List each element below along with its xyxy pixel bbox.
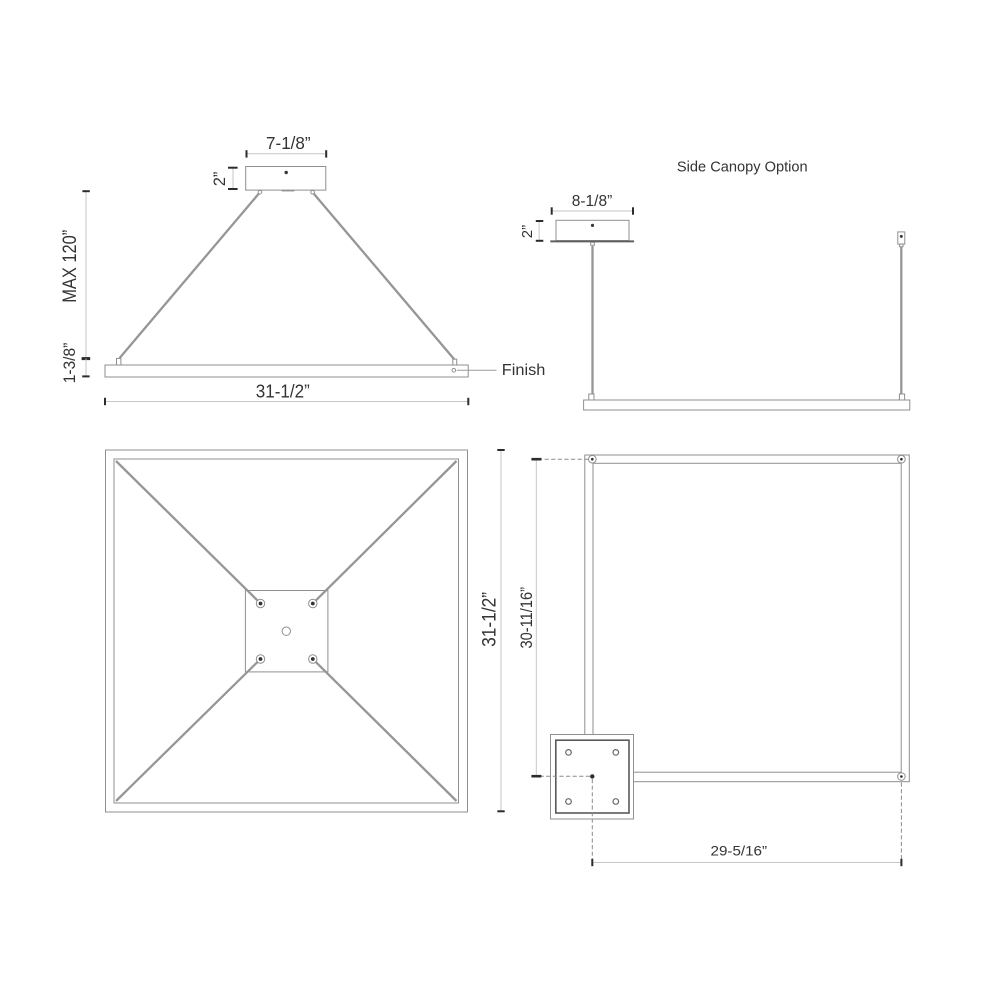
svg-text:7-1/8”: 7-1/8”	[266, 133, 311, 153]
svg-text:31-1/2”: 31-1/2”	[480, 592, 501, 647]
svg-text:1-3/8”: 1-3/8”	[60, 342, 79, 383]
svg-text:Side Canopy Option: Side Canopy Option	[677, 159, 808, 175]
svg-text:31-1/2”: 31-1/2”	[256, 380, 310, 401]
svg-text:8-1/8”: 8-1/8”	[572, 193, 613, 210]
svg-text:MAX 120”: MAX 120”	[60, 230, 81, 303]
svg-text:2”: 2”	[211, 172, 229, 187]
svg-text:30-11/16”: 30-11/16”	[517, 587, 536, 649]
svg-text:2”: 2”	[519, 225, 536, 238]
svg-text:Finish: Finish	[502, 362, 546, 379]
svg-text:29-5/16”: 29-5/16”	[711, 843, 768, 859]
